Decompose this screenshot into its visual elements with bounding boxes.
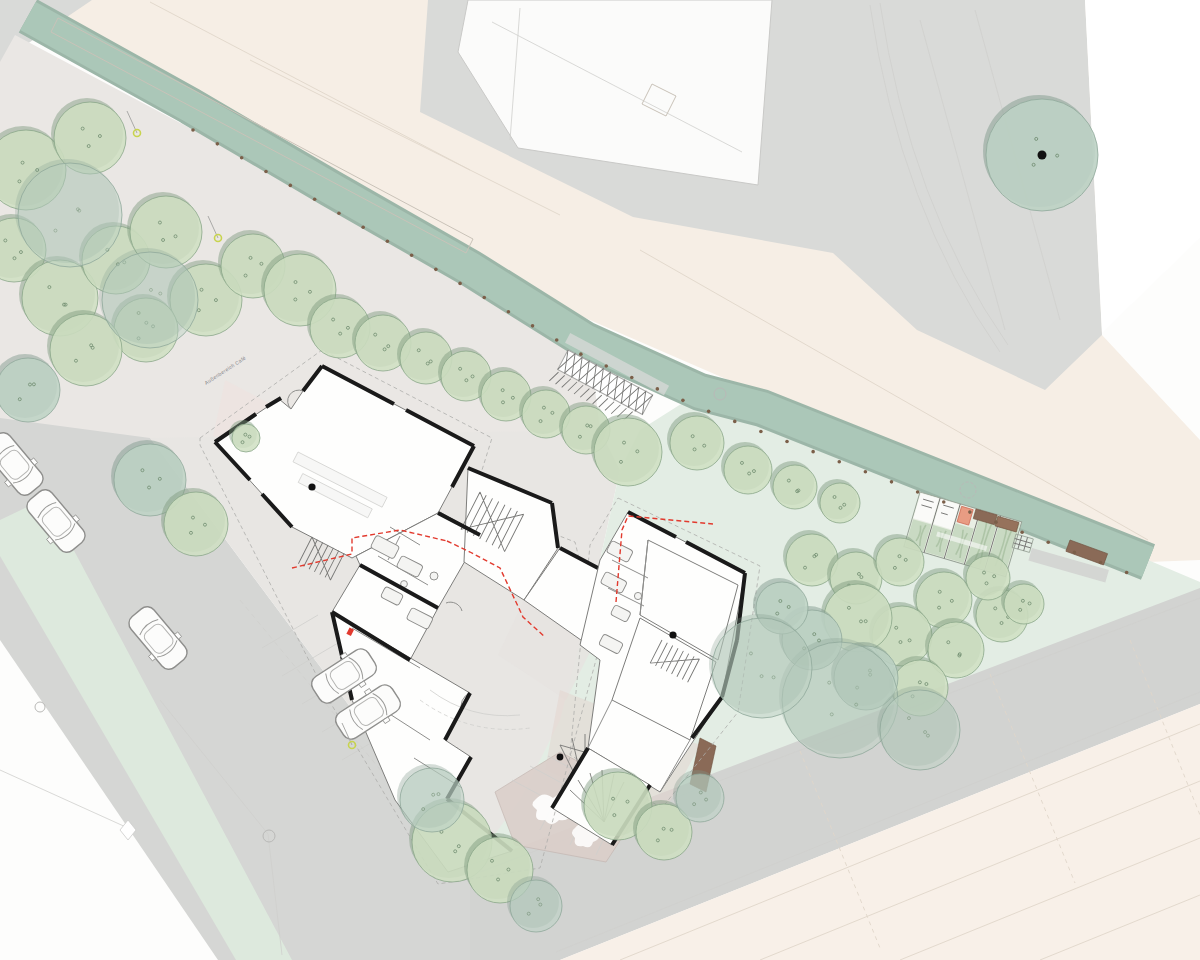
fence-post (916, 490, 920, 494)
fence-post (942, 500, 946, 504)
fence-post (707, 410, 711, 414)
fence-post (216, 142, 220, 146)
fence-post (240, 156, 244, 160)
fence-post (759, 430, 763, 434)
fence-post (386, 239, 390, 243)
fence-post (410, 254, 414, 258)
fence-post (681, 399, 685, 403)
fence-post (507, 310, 511, 314)
fence-post (337, 211, 341, 215)
fence-post (531, 324, 535, 328)
fence-post (434, 268, 438, 272)
fence-post (555, 338, 559, 342)
fence-post (361, 225, 365, 229)
fence-post (579, 352, 583, 356)
fence-post (1073, 551, 1077, 555)
fence-post (733, 420, 737, 424)
fence-post (313, 197, 317, 201)
fence-post (604, 364, 608, 368)
fence-post (1020, 530, 1024, 534)
fence-post (811, 450, 815, 454)
fence-post (289, 184, 293, 188)
fence-post (864, 470, 868, 474)
fence-post (1046, 541, 1050, 545)
fence-post (837, 460, 841, 464)
fence-post (482, 296, 486, 300)
fence-post (458, 282, 462, 286)
fence-post (968, 510, 972, 514)
fence-post (785, 440, 789, 444)
fence-post (994, 520, 998, 524)
fence-post (890, 480, 894, 484)
column (308, 483, 315, 490)
fence-post (264, 170, 268, 174)
column (669, 631, 676, 638)
column (557, 754, 564, 761)
fence-post (191, 128, 195, 132)
fence-post (1099, 561, 1103, 565)
fence-post (630, 376, 634, 380)
fence-post (656, 387, 660, 391)
site-plan-svg: Außenbereich Café (0, 0, 1200, 960)
fence-post (1125, 571, 1129, 575)
site-plan-canvas: Außenbereich Café (0, 0, 1200, 960)
